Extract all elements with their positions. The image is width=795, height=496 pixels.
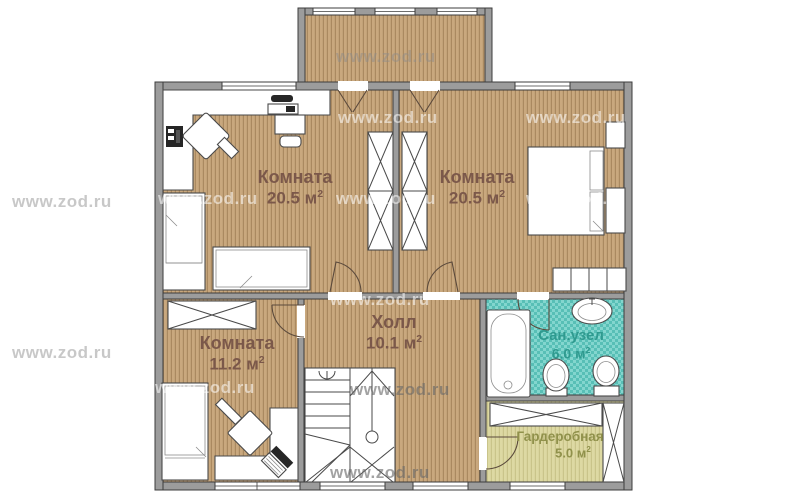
room-name: Комната	[167, 333, 307, 354]
room-area: 11.2 м2	[167, 354, 307, 375]
sink	[572, 298, 612, 324]
nightstand	[606, 122, 625, 148]
wardrobe-top	[168, 301, 256, 329]
desk-chair	[280, 136, 301, 147]
dressing-room-label: Гардеробная 5.0 м2	[490, 429, 630, 461]
window-bottom-1	[215, 482, 300, 490]
room-area: 20.5 м2	[407, 188, 547, 209]
desk	[275, 115, 305, 147]
room-name: Сан.узел	[505, 327, 637, 345]
window-top-right	[515, 82, 570, 90]
dresser	[553, 268, 626, 291]
bed-single-3	[162, 383, 208, 480]
hall-label: Холл 10.1 м2	[324, 312, 464, 354]
room-label-top-left: Комната 20.5 м2	[225, 167, 365, 209]
window-bottom-2	[320, 482, 385, 490]
bed-single-2	[213, 247, 310, 290]
floor-plan-drawing	[0, 0, 795, 496]
room-name: Гардеробная	[490, 429, 630, 445]
toilet	[593, 356, 619, 396]
balcony-window-3	[437, 8, 477, 15]
room-area: 10.1 м2	[324, 333, 464, 354]
room-name: Комната	[225, 167, 365, 188]
wardrobe-left-room	[368, 132, 393, 250]
tv-icon	[166, 126, 183, 147]
staircase	[305, 368, 395, 482]
bidet	[543, 359, 569, 396]
wardrobe-dressing-top	[490, 403, 602, 426]
bathroom-label: Сан.узел 6.0 м2	[505, 327, 637, 362]
balcony-window-1	[313, 8, 355, 15]
balcony-window-2	[375, 8, 415, 15]
balcony-floor	[305, 14, 485, 84]
window-bottom-4	[510, 482, 565, 490]
room-area: 6.0 м2	[505, 345, 637, 362]
window-bottom-3	[413, 482, 468, 490]
interior-wall-horizontal	[163, 293, 624, 299]
balcony-left-wall	[298, 8, 305, 89]
room-label-bottom-left: Комната 11.2 м2	[167, 333, 307, 375]
cabinet	[606, 188, 625, 233]
floor-plan-image: www.zod.ru www.zod.ru www.zod.ru www.zod…	[0, 0, 795, 496]
room-name: Комната	[407, 167, 547, 188]
room-name: Холл	[324, 312, 464, 333]
room-area: 20.5 м2	[225, 188, 365, 209]
room-area: 5.0 м2	[490, 445, 630, 461]
window-top-left	[222, 82, 296, 90]
bed-single-1	[163, 193, 205, 290]
balcony-right-wall	[485, 8, 492, 89]
room-label-top-right: Комната 20.5 м2	[407, 167, 547, 209]
interior-wall-between-bedrooms	[393, 90, 399, 293]
